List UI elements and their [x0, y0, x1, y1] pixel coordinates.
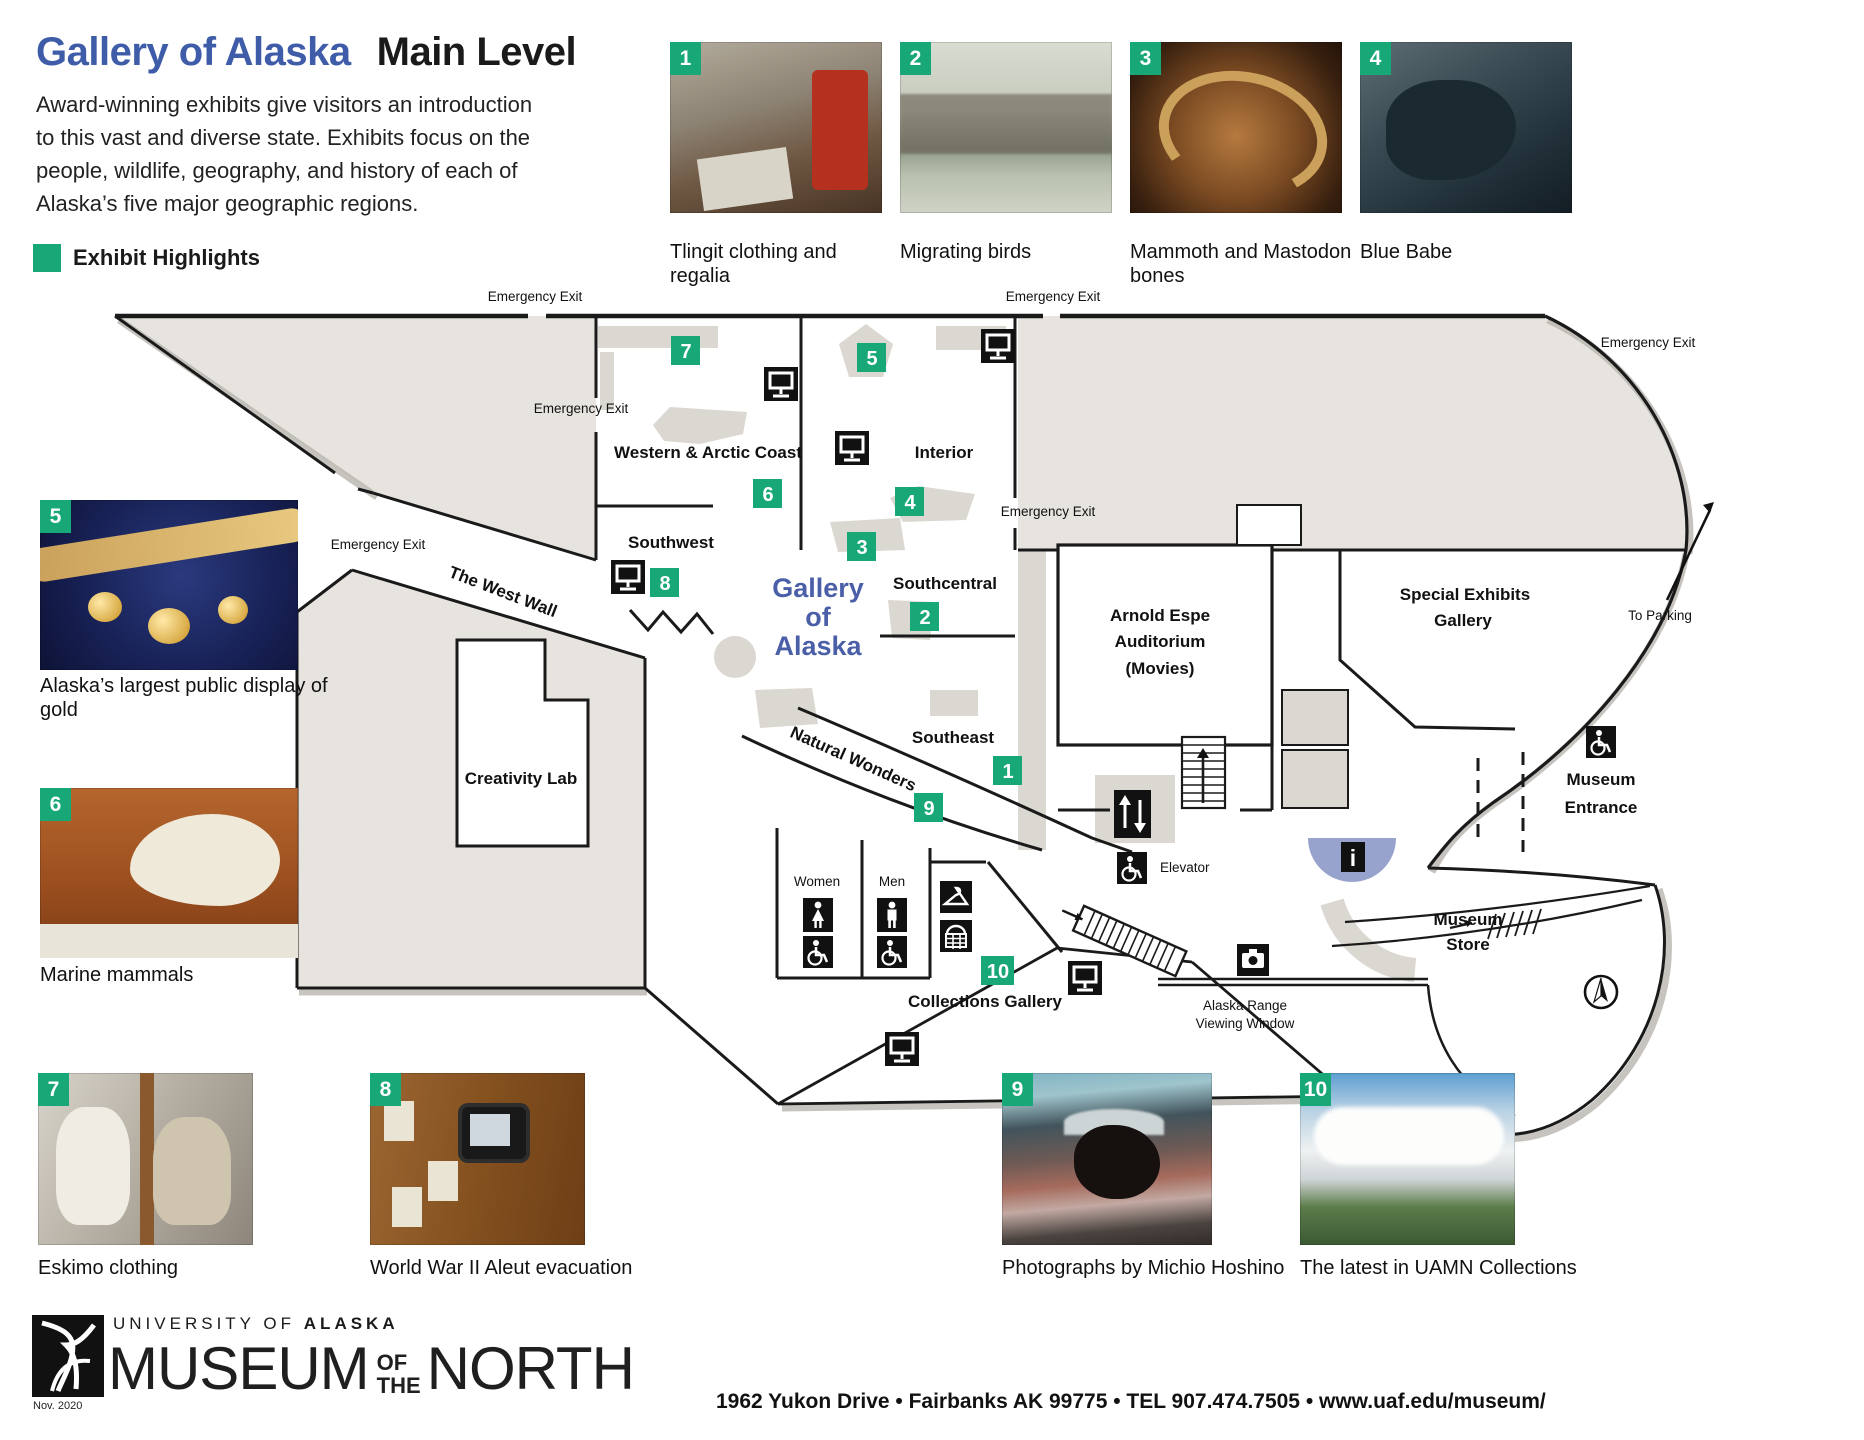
- intro-paragraph: Award-winning exhibits give visitors an …: [36, 88, 532, 220]
- page-title-gallery: Gallery of Alaska: [36, 30, 351, 74]
- gallery-of-alaska-label: of: [805, 602, 831, 632]
- marker-number: 5: [866, 348, 877, 370]
- exhibit-photo-3: 3: [1130, 42, 1342, 213]
- of-word: OF: [377, 1351, 421, 1374]
- marker-5: 5: [857, 343, 886, 372]
- alaska-range-window-label: Alaska Range: [1203, 998, 1287, 1013]
- women-restroom-label: Women: [794, 874, 840, 889]
- exhibit-number-badge: 6: [40, 788, 71, 821]
- region-interior: Interior: [915, 443, 974, 462]
- photo-detail: [697, 147, 793, 211]
- information-icon: i: [1308, 838, 1396, 882]
- page-title-level: Main Level: [377, 30, 577, 74]
- photo-detail: [384, 1101, 414, 1141]
- photo-detail: [1314, 1107, 1504, 1165]
- marker-number: 4: [904, 492, 916, 514]
- region-southeast: Southeast: [912, 728, 995, 747]
- to-parking-label: To Parking: [1628, 608, 1692, 623]
- marker-number: 9: [923, 798, 934, 820]
- exhibit-caption-7: Eskimo clothing: [38, 1256, 268, 1280]
- exhibit-number-badge: 8: [370, 1073, 401, 1106]
- marker-3: 3: [847, 532, 876, 561]
- photo-detail: [1386, 80, 1516, 180]
- museum-address: 1962 Yukon Drive • Fairbanks AK 99775 • …: [716, 1390, 1546, 1414]
- restroom-female-icon: [803, 898, 833, 932]
- auditorium-label: Auditorium: [1115, 632, 1206, 651]
- exhibit-number-badge: 4: [1360, 42, 1391, 75]
- wheelchair-icon: [1117, 852, 1147, 884]
- exhibit-caption-5: Alaska’s largest public display of gold: [40, 674, 332, 722]
- exhibit-caption-9: Photographs by Michio Hoshino: [1002, 1256, 1302, 1280]
- photo-detail: [56, 1107, 130, 1225]
- exhibit-photo-2: 2: [900, 42, 1112, 213]
- video-monitor-icon: [835, 431, 869, 465]
- emergency-exit-label: Emergency Exit: [1001, 504, 1096, 519]
- emergency-exit-label: Emergency Exit: [331, 537, 426, 552]
- exhibit-photo-8: 8: [370, 1073, 585, 1245]
- museum-store-label: Store: [1446, 935, 1489, 954]
- exhibit-number-badge: 5: [40, 500, 71, 533]
- video-monitor-icon: [611, 560, 645, 594]
- exhibit-number-badge: 1: [670, 42, 701, 75]
- exhibit-caption-1: Tlingit clothing and regalia: [670, 240, 890, 288]
- region-southcentral: Southcentral: [893, 574, 997, 593]
- museum-word: MUSEUM: [108, 1334, 369, 1403]
- museum-entrance-label: Entrance: [1565, 798, 1638, 817]
- marker-6: 6: [753, 479, 782, 508]
- exhibit-highlights-legend: Exhibit Highlights: [33, 244, 260, 272]
- marker-7: 7: [671, 336, 700, 365]
- coat-hanger-icon: [940, 881, 972, 913]
- video-monitor-icon: [1068, 961, 1102, 995]
- video-monitor-icon: [764, 367, 798, 401]
- marker-4: 4: [895, 487, 924, 516]
- photo-detail: [1147, 56, 1339, 213]
- photo-detail: [470, 1114, 510, 1146]
- photo-detail: [812, 70, 868, 190]
- exhibit-caption-3: Mammoth and Mastodon bones: [1130, 240, 1370, 288]
- intro-line: to this vast and diverse state. Exhibits…: [36, 121, 532, 154]
- exhibit-photo-6: 6: [40, 788, 298, 958]
- elevator-arrows-icon: [1114, 790, 1151, 838]
- legend-label: Exhibit Highlights: [73, 245, 260, 271]
- emergency-exit-label: Emergency Exit: [1601, 335, 1696, 350]
- wheelchair-icon: [877, 936, 907, 968]
- exhibit-photo-1: 1: [670, 42, 882, 213]
- museum-entrance-label: Museum: [1567, 770, 1636, 789]
- photo-detail: [40, 924, 298, 958]
- exhibit-caption-6: Marine mammals: [40, 963, 300, 987]
- marker-number: 1: [1002, 761, 1013, 783]
- university-wordmark: UNIVERSITY OF ALASKA: [113, 1314, 399, 1334]
- exhibit-number-badge: 7: [38, 1073, 69, 1106]
- map-date: Nov. 2020: [33, 1400, 82, 1412]
- north-word: NORTH: [427, 1334, 634, 1403]
- exhibit-photo-7: 7: [38, 1073, 253, 1245]
- photo-detail: [900, 94, 1112, 154]
- marker-number: 10: [987, 961, 1009, 983]
- museum-logo-icon: [32, 1315, 104, 1397]
- svg-text:i: i: [1350, 845, 1356, 871]
- exhibit-caption-8: World War II Aleut evacuation: [370, 1256, 660, 1280]
- auditorium-label: (Movies): [1126, 659, 1195, 678]
- legend-swatch: [33, 244, 61, 272]
- exhibit-photo-5: 5: [40, 500, 298, 670]
- marker-number: 2: [919, 607, 930, 629]
- marker-2: 2: [910, 602, 939, 631]
- emergency-exit-label: Emergency Exit: [534, 401, 629, 416]
- intro-line: Award-winning exhibits give visitors an …: [36, 88, 532, 121]
- region-southwest: Southwest: [628, 533, 714, 552]
- photo-detail: [218, 596, 248, 624]
- marker-number: 8: [659, 573, 670, 595]
- video-monitor-icon: [981, 329, 1015, 363]
- gallery-of-alaska-label: Alaska: [774, 631, 862, 661]
- north-compass-icon: [1585, 976, 1617, 1008]
- special-exhibits-label: Gallery: [1434, 611, 1492, 630]
- the-word: THE: [377, 1374, 421, 1397]
- creativity-lab-label: Creativity Lab: [465, 769, 577, 788]
- marker-10: 10: [981, 956, 1014, 985]
- marker-number: 6: [762, 484, 773, 506]
- photo-detail: [130, 814, 280, 906]
- intro-line: Alaska’s five major geographic regions.: [36, 187, 532, 220]
- exhibit-number-badge: 3: [1130, 42, 1161, 75]
- exhibit-number-badge: 9: [1002, 1073, 1033, 1106]
- photo-detail: [148, 608, 190, 644]
- emergency-exit-label: Emergency Exit: [1006, 289, 1101, 304]
- university-prefix: UNIVERSITY OF: [113, 1314, 295, 1333]
- intro-line: people, wildlife, geography, and history…: [36, 154, 532, 187]
- elevator-label: Elevator: [1160, 860, 1210, 875]
- camera-icon: [1237, 944, 1269, 976]
- emergency-exit-label: Emergency Exit: [488, 289, 583, 304]
- men-restroom-label: Men: [879, 874, 905, 889]
- museum-wordmark: MUSEUM OFTHE NORTH: [108, 1334, 634, 1403]
- page-title: Gallery of AlaskaMain Level: [36, 30, 576, 75]
- marker-number: 7: [680, 341, 691, 363]
- locker-icon: [940, 920, 972, 952]
- restroom-male-icon: [877, 898, 907, 932]
- marker-1: 1: [993, 756, 1022, 785]
- gallery-of-alaska-label: Gallery: [772, 573, 864, 603]
- exhibit-number-badge: 10: [1300, 1073, 1331, 1106]
- photo-detail: [1074, 1125, 1160, 1199]
- special-exhibits-label: Special Exhibits: [1400, 585, 1530, 604]
- wheelchair-icon: [803, 936, 833, 968]
- exhibit-photo-9: 9: [1002, 1073, 1212, 1245]
- auditorium-label: Arnold Espe: [1110, 606, 1210, 625]
- marker-9: 9: [914, 793, 943, 822]
- photo-detail: [40, 506, 298, 583]
- video-monitor-icon: [885, 1032, 919, 1066]
- marker-number: 3: [856, 537, 867, 559]
- page: { "header": { "title_blue": "Gallery of …: [0, 0, 1864, 1440]
- region-western-arctic-coast: Western & Arctic Coast: [614, 443, 802, 462]
- photo-detail: [153, 1117, 231, 1225]
- collections-gallery-label: Collections Gallery: [908, 992, 1063, 1011]
- alaska-range-window-label: Viewing Window: [1196, 1016, 1295, 1031]
- university-alaska: ALASKA: [304, 1314, 399, 1333]
- exhibit-caption-4: Blue Babe: [1360, 240, 1580, 264]
- photo-detail: [88, 592, 122, 622]
- wheelchair-icon: [1586, 726, 1616, 758]
- exhibit-photo-4: 4: [1360, 42, 1572, 213]
- museum-store-label: Museum: [1434, 910, 1503, 929]
- exhibit-number-badge: 2: [900, 42, 931, 75]
- exhibit-caption-10: The latest in UAMN Collections: [1300, 1256, 1600, 1280]
- exhibit-photo-10: 10: [1300, 1073, 1515, 1245]
- photo-detail: [140, 1073, 154, 1245]
- marker-8: 8: [650, 568, 679, 597]
- exhibit-caption-2: Migrating birds: [900, 240, 1120, 264]
